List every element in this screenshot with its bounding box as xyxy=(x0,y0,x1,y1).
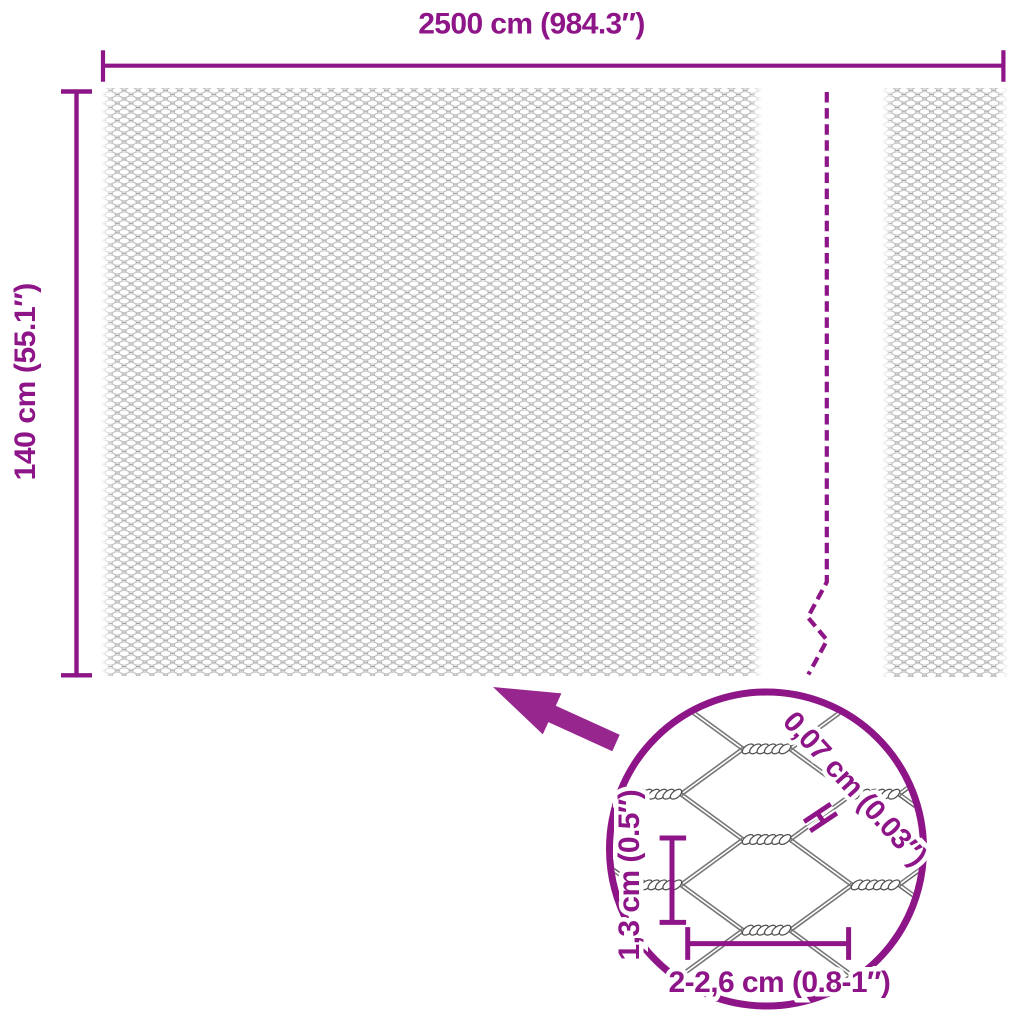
svg-text:2-2,6 cm (0.8-1″): 2-2,6 cm (0.8-1″) xyxy=(669,966,891,999)
svg-text:140 cm (55.1″): 140 cm (55.1″) xyxy=(9,283,42,480)
svg-text:2500 cm (984.3″): 2500 cm (984.3″) xyxy=(418,8,645,41)
svg-text:1,3 cm (0.5″): 1,3 cm (0.5″) xyxy=(613,790,646,961)
